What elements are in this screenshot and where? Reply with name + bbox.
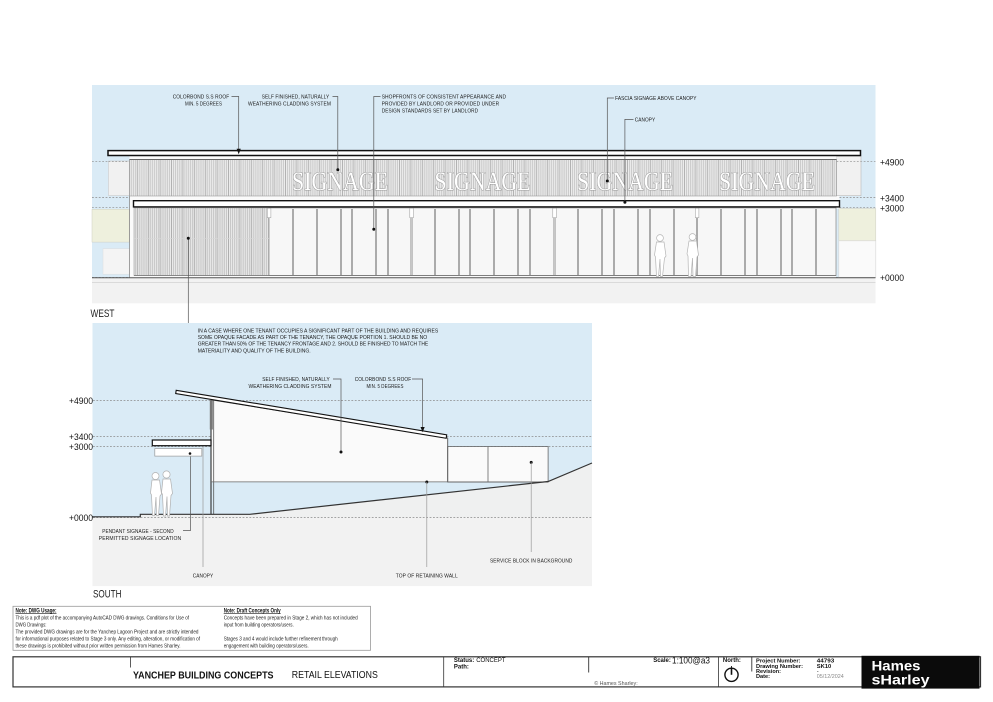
svg-text:DWG Drawings:: DWG Drawings: — [16, 623, 47, 629]
svg-text:PROVIDED BY LANDLORD OR PROVI: PROVIDED BY LANDLORD OR PROVIDED UNDER — [382, 102, 500, 108]
svg-text:DESIGN STANDARDS SET BY LANDLO: DESIGN STANDARDS SET BY LANDLORD — [382, 109, 479, 115]
svg-text:Status:: Status: — [454, 658, 474, 664]
svg-text:WEST: WEST — [91, 308, 115, 320]
svg-text:SELF FINISHED, NATURALLY: SELF FINISHED, NATURALLY — [262, 95, 330, 101]
svg-text:The provided DWG drawings are: The provided DWG drawings are for the Ya… — [16, 630, 199, 636]
svg-text:1:100@a3: 1:100@a3 — [672, 656, 710, 666]
svg-text:WEATHERING CLADDING SYSTEM: WEATHERING CLADDING SYSTEM — [248, 102, 331, 108]
svg-text:for informational purposes rel: for informational purposes related to St… — [16, 636, 201, 642]
svg-text:+0000: +0000 — [880, 273, 904, 284]
svg-text:Hames: Hames — [872, 659, 921, 674]
svg-text:SERVICE BLOCK IN BACKGROUND: SERVICE BLOCK IN BACKGROUND — [490, 559, 573, 565]
svg-text:PERMITTED SIGNAGE LOCATION: PERMITTED SIGNAGE LOCATION — [99, 536, 182, 542]
svg-text:+4900: +4900 — [880, 158, 904, 169]
svg-text:YANCHEP BUILDING CONCEPTS: YANCHEP BUILDING CONCEPTS — [133, 670, 274, 682]
svg-text:Date:: Date: — [756, 674, 770, 680]
svg-text:MIN. 5 DEGREES: MIN. 5 DEGREES — [185, 102, 222, 108]
svg-text:Path:: Path: — [454, 665, 469, 671]
svg-text:Scale:: Scale: — [653, 658, 671, 664]
svg-text:COLORBOND S.S ROOF: COLORBOND S.S ROOF — [355, 377, 412, 383]
svg-text:North:: North: — [723, 658, 741, 664]
svg-text:MATERIALITY AND QUALITY OF THE: MATERIALITY AND QUALITY OF THE BUILDING. — [198, 348, 311, 354]
svg-text:+3000: +3000 — [880, 204, 904, 215]
svg-text:SIGNAGE: SIGNAGE — [719, 166, 815, 196]
svg-text:CANOPY: CANOPY — [635, 117, 656, 123]
svg-text:TOP OF RETAINING WALL: TOP OF RETAINING WALL — [396, 574, 459, 580]
svg-text:COLORBOND S.S ROOF: COLORBOND S.S ROOF — [173, 95, 230, 101]
svg-text:05/12/2024: 05/12/2024 — [817, 674, 845, 680]
svg-text:GREATER THAN 50% OF THE TENANC: GREATER THAN 50% OF THE TENANCY FRONTAGE… — [198, 342, 429, 348]
svg-text:Stages 3 and 4 would include f: Stages 3 and 4 would include further ref… — [224, 636, 338, 642]
svg-text:PENDANT SIGNAGE - SECOND: PENDANT SIGNAGE - SECOND — [102, 529, 174, 535]
svg-text:CANOPY: CANOPY — [193, 574, 214, 580]
svg-text:MIN. 5 DEGREES: MIN. 5 DEGREES — [367, 384, 404, 390]
svg-text:engagement with building opera: engagement with building operators/users… — [224, 643, 309, 649]
svg-text:SOUTH: SOUTH — [93, 589, 122, 601]
svg-text:RETAIL ELEVATIONS: RETAIL ELEVATIONS — [292, 670, 378, 681]
svg-text:This is a pdf plot of the acco: This is a pdf plot of the accompanying A… — [16, 616, 190, 622]
svg-text:SELF FINISHED, NATURALLY: SELF FINISHED, NATURALLY — [262, 377, 330, 383]
svg-text:SK10: SK10 — [817, 664, 832, 670]
svg-text:+4900: +4900 — [69, 396, 93, 407]
svg-text:WEATHERING CLADDING SYSTEM: WEATHERING CLADDING SYSTEM — [249, 384, 332, 390]
svg-text:sHarley: sHarley — [872, 673, 931, 688]
svg-text:+3000: +3000 — [69, 442, 93, 453]
svg-text:© Hames Sharley:: © Hames Sharley: — [594, 680, 638, 687]
svg-text:these drawings is prohibited w: these drawings is prohibited without pri… — [16, 643, 181, 649]
svg-text:Note: Draft Concepts Only: Note: Draft Concepts Only — [224, 608, 281, 614]
svg-text:SHOPFRONTS OF CONSISTENT APPEA: SHOPFRONTS OF CONSISTENT APPEARANCE AND — [382, 95, 507, 101]
svg-text:CONCEPT: CONCEPT — [476, 658, 506, 664]
svg-text:FASCIA SIGNAGE ABOVE CANOPY: FASCIA SIGNAGE ABOVE CANOPY — [615, 96, 697, 102]
svg-text:input from building operators/: input from building operators/users. — [224, 623, 294, 629]
svg-text:IN A CASE WHERE ONE TENANT OCC: IN A CASE WHERE ONE TENANT OCCUPIES A SI… — [198, 328, 439, 334]
svg-text:SIGNAGE: SIGNAGE — [435, 166, 531, 196]
svg-text:+0000: +0000 — [69, 513, 93, 524]
svg-text:Concepts have been prepared in: Concepts have been prepared in Stage 2, … — [224, 616, 358, 622]
svg-text:Note: DWG Usage:: Note: DWG Usage: — [16, 608, 57, 614]
svg-text:SOME OPAQUE FACADE AS PART OF: SOME OPAQUE FACADE AS PART OF THE TENANC… — [198, 335, 428, 341]
